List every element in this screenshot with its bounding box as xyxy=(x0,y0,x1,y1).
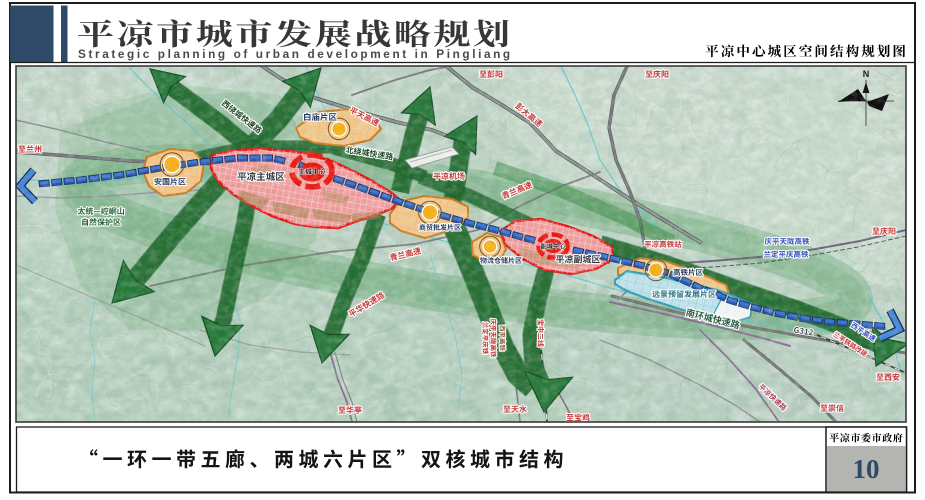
svg-text:10: 10 xyxy=(853,454,880,484)
svg-text:Strategic planning of urban de: Strategic planning of urban development … xyxy=(78,47,513,61)
